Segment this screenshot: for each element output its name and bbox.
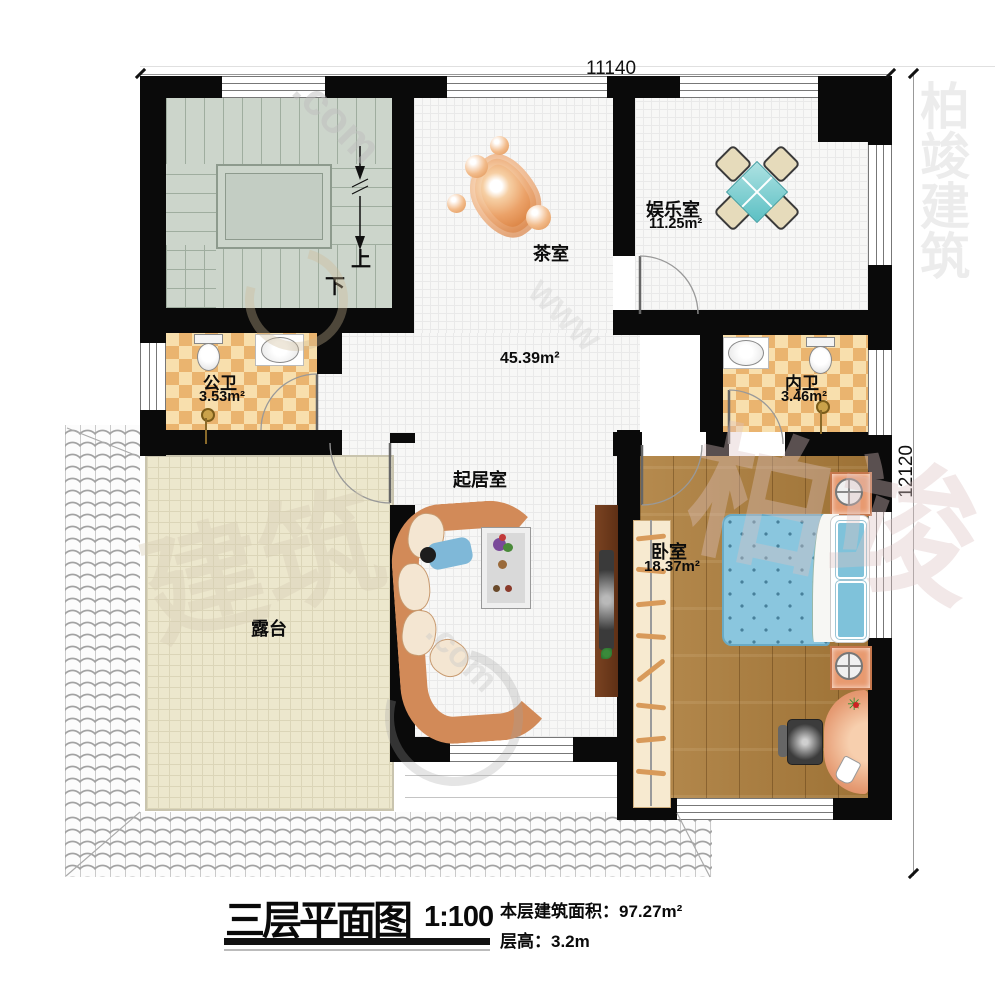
floor-area-text: 本层建筑面积：97.27m²	[500, 897, 682, 922]
room-area-bedroom: 18.37m²	[644, 558, 700, 575]
right-dimension-label: 12120	[896, 445, 918, 498]
wall	[613, 98, 635, 256]
window	[677, 798, 833, 820]
floor-plan-canvas: 11140 12120	[0, 0, 1000, 990]
wall	[390, 433, 415, 443]
beanbag-pouf	[490, 136, 509, 155]
stairs-up-label: 上	[351, 243, 371, 272]
dim-tick	[908, 868, 919, 879]
window	[868, 350, 892, 435]
wall	[140, 76, 166, 343]
window	[868, 512, 892, 638]
room-area-entertainment: 11.25m²	[649, 216, 702, 232]
person-head	[420, 547, 436, 563]
window	[140, 343, 166, 410]
tv-icon	[599, 550, 614, 650]
pillow	[836, 521, 866, 579]
wall	[785, 432, 868, 456]
room-area-public-bath: 3.53m²	[199, 389, 245, 405]
window	[447, 76, 607, 98]
roof-tiles-left	[65, 425, 140, 877]
flower-bud	[499, 534, 506, 541]
top-dimension-line	[140, 74, 890, 75]
desk-plant	[847, 696, 861, 713]
table-item	[498, 560, 507, 569]
top-dimension-label: 11140	[586, 58, 636, 80]
drawing-scale: 1:100	[424, 901, 493, 934]
eave-line	[140, 66, 995, 67]
stair-landing	[216, 164, 332, 249]
coffee-table	[481, 527, 531, 609]
ledge-line	[405, 797, 633, 798]
drain-stem	[820, 410, 822, 434]
beanbag-pouf	[526, 205, 551, 230]
sink-icon	[728, 340, 764, 366]
floor-height-text: 层高：3.2m	[500, 927, 590, 952]
room-label-tea: 茶室	[533, 240, 569, 266]
wall	[613, 310, 868, 335]
pillow	[836, 581, 866, 639]
drain-stem	[205, 418, 207, 444]
wall	[140, 430, 342, 455]
stair-treads-top	[166, 98, 392, 164]
beanbag-pouf	[447, 194, 466, 213]
cabinet-plant	[601, 648, 612, 659]
roof-tiles-bottom	[65, 812, 712, 877]
title-underline	[224, 938, 490, 945]
room-label-terrace: 露台	[251, 615, 287, 641]
toilet-icon	[197, 343, 220, 371]
room-label-living: 起居室	[453, 466, 507, 492]
wall	[325, 76, 447, 98]
table-item	[493, 585, 500, 592]
beanbag-pouf	[465, 155, 488, 178]
room-area-living: 45.39m²	[500, 350, 560, 368]
stair-treads-right	[328, 164, 392, 245]
title-underline-thin	[224, 949, 490, 951]
lamp-icon	[835, 478, 863, 506]
computer-monitor-icon	[787, 719, 823, 765]
table-item	[505, 585, 512, 592]
window	[680, 76, 818, 98]
lamp-icon	[835, 652, 863, 680]
floor-drain-icon	[201, 408, 215, 422]
wall	[833, 798, 868, 820]
window	[222, 76, 325, 98]
watermark: 柏竣建筑	[905, 80, 977, 280]
wall	[706, 432, 729, 456]
wall	[392, 98, 414, 333]
window	[868, 145, 892, 265]
wall	[700, 335, 723, 432]
room-area-ensuite-bath: 3.46m²	[781, 389, 827, 405]
flower-leaf	[503, 543, 513, 552]
